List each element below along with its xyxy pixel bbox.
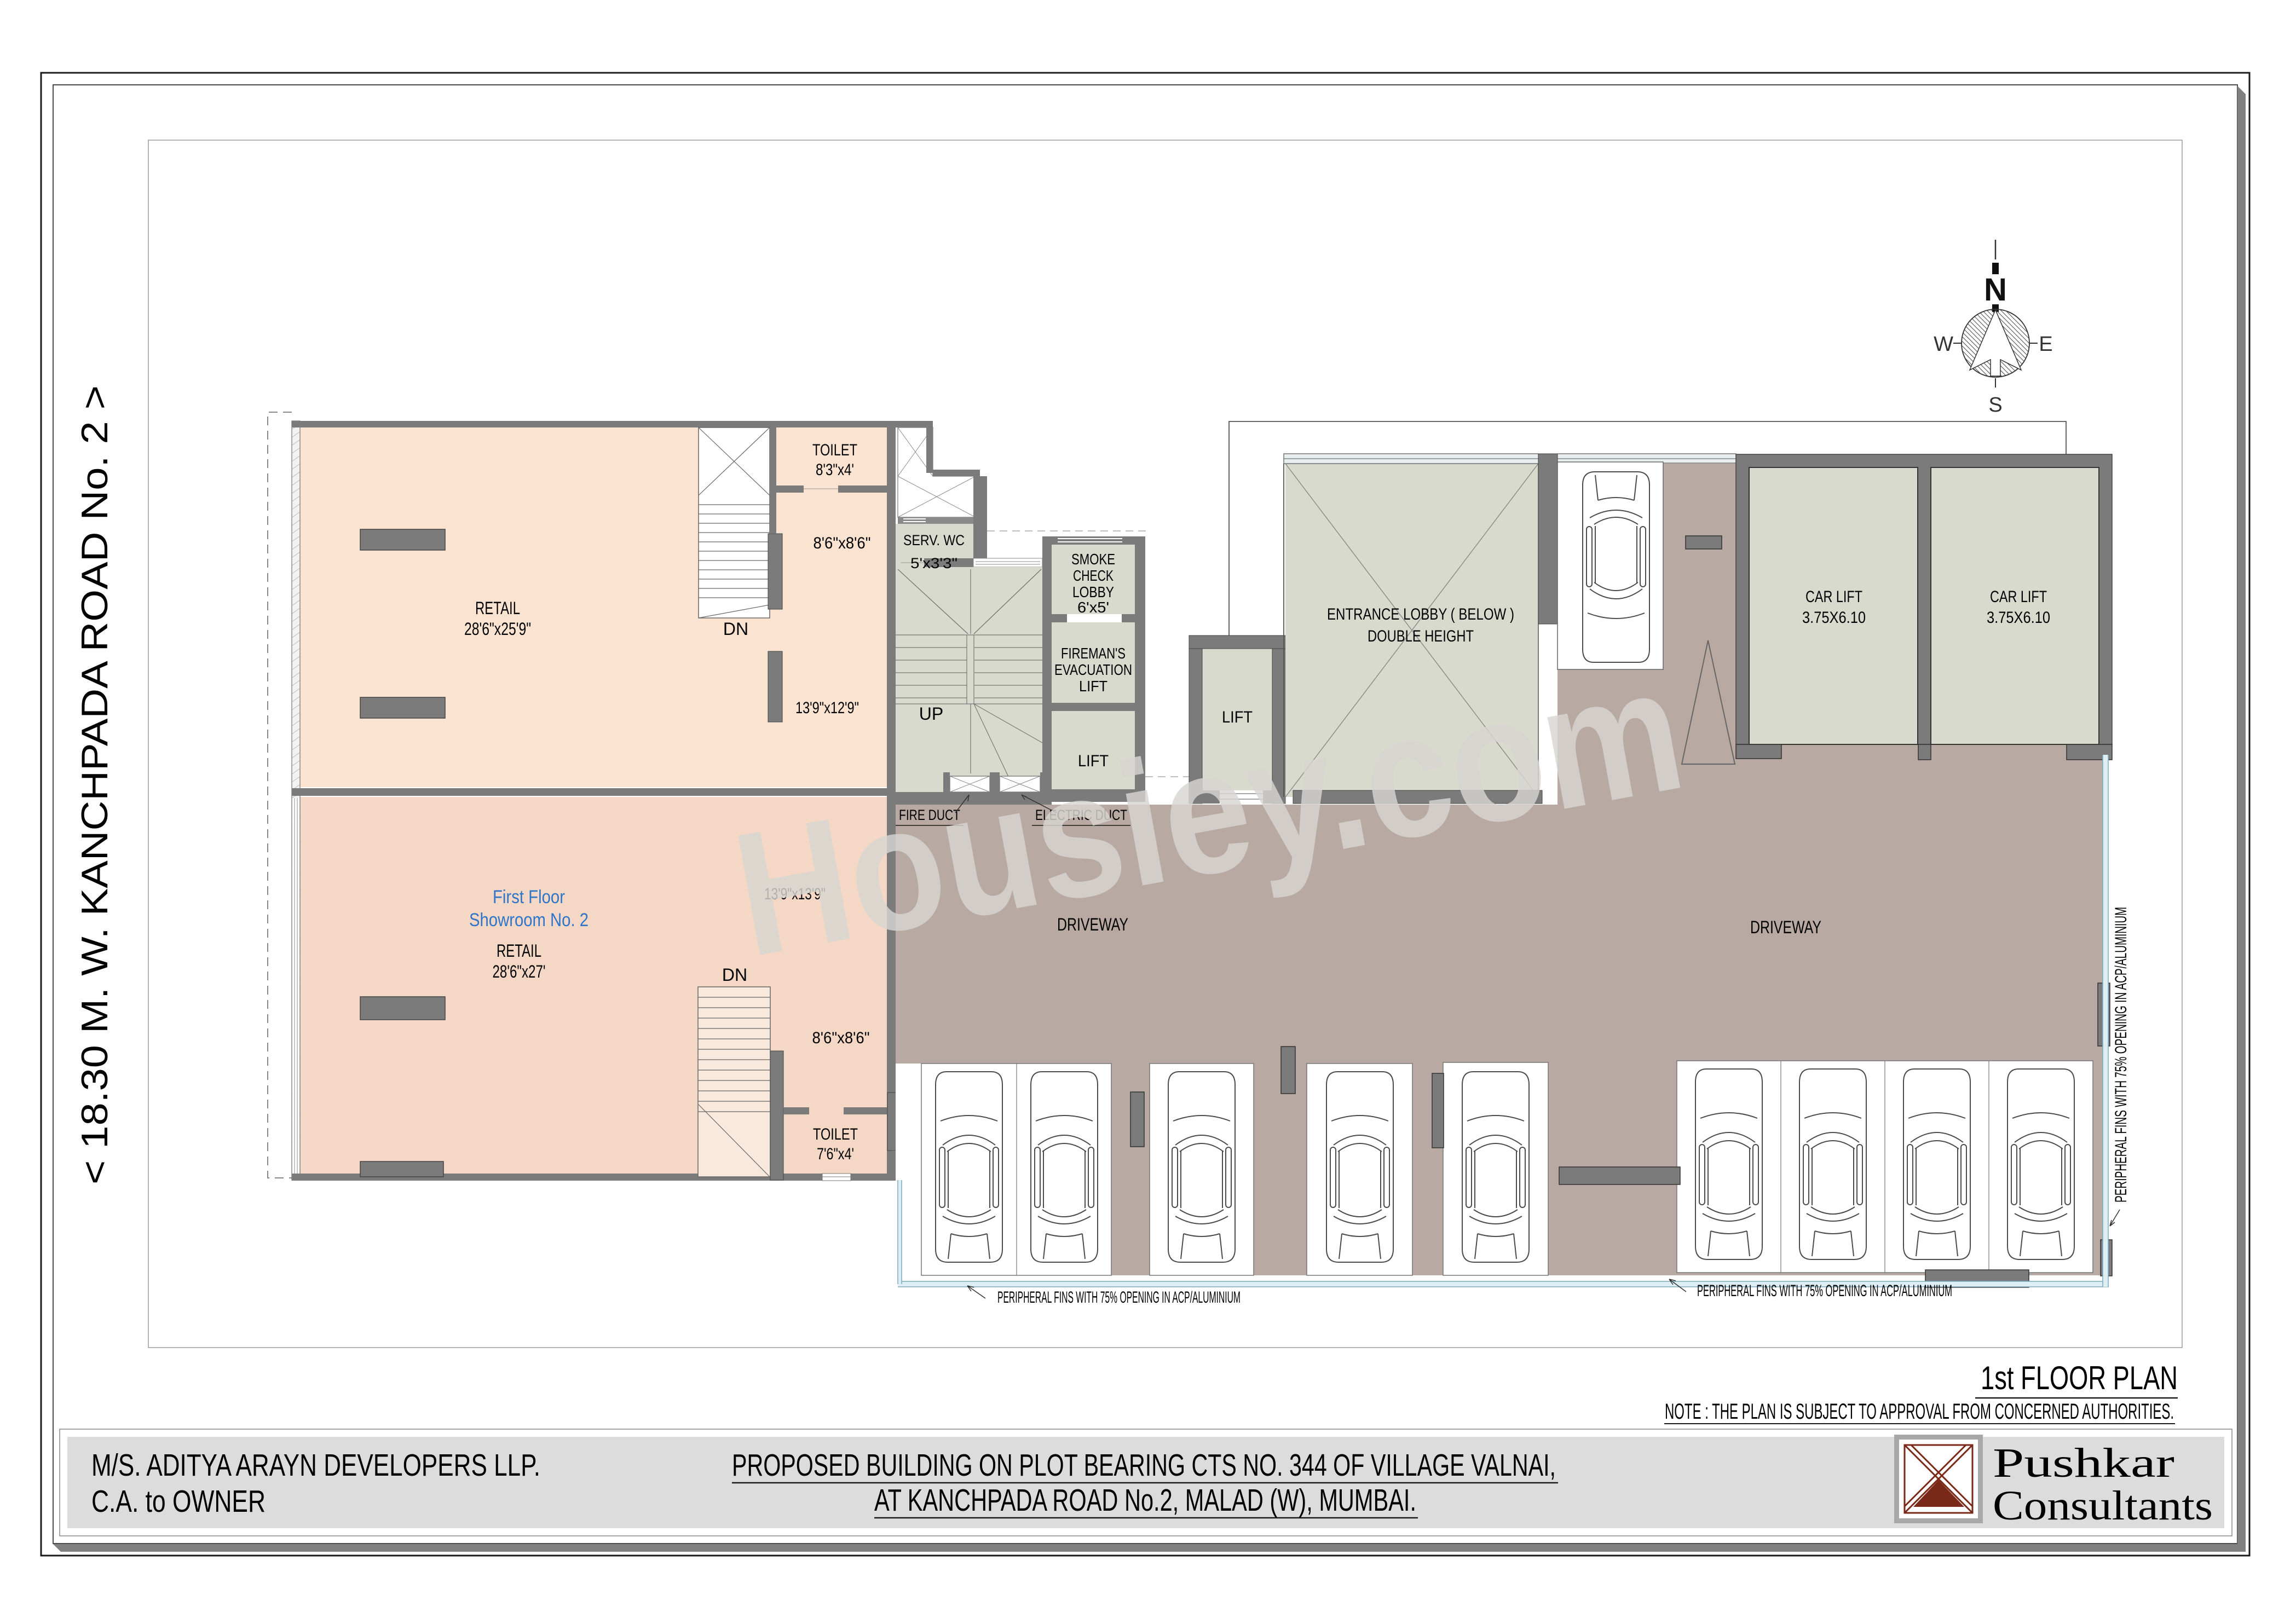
svg-text:TOILET: TOILET [813,1125,858,1143]
svg-text:CAR LIFT: CAR LIFT [1805,588,1862,606]
svg-text:RETAIL: RETAIL [497,941,541,961]
svg-text:SERV. WC: SERV. WC [903,532,965,548]
svg-text:TOILET: TOILET [812,441,857,459]
svg-text:W: W [1934,333,1953,356]
svg-text:DOUBLE HEIGHT: DOUBLE HEIGHT [1368,627,1474,645]
svg-text:RETAIL: RETAIL [475,598,520,618]
svg-text:S: S [1988,394,2002,417]
svg-text:AT KANCHPADA ROAD No.2, MALAD: AT KANCHPADA ROAD No.2, MALAD (W), MUMBA… [874,1483,1416,1518]
svg-text:C.A. to OWNER: C.A. to OWNER [91,1484,266,1519]
svg-text:28'6"x27': 28'6"x27' [493,962,546,981]
svg-text:M/S. ADITYA ARAYN DEVELOPERS L: M/S. ADITYA ARAYN DEVELOPERS LLP. [91,1448,540,1483]
svg-text:Consultants: Consultants [1993,1483,2213,1529]
svg-text:DRIVEWAY: DRIVEWAY [1750,917,1821,937]
svg-text:PROPOSED BUILDING ON PLOT BEAR: PROPOSED BUILDING ON PLOT BEARING CTS NO… [732,1448,1556,1483]
svg-text:UP: UP [919,704,943,724]
svg-text:ENTRANCE LOBBY ( BELOW ): ENTRANCE LOBBY ( BELOW ) [1327,605,1514,623]
svg-text:5'x3'3": 5'x3'3" [910,555,957,571]
svg-text:13'9"x12'9": 13'9"x12'9" [795,699,859,717]
svg-text:< 18.30 M. W. KANCHPADA ROA: < 18.30 M. W. KANCHPADA ROAD No. 2 > [74,385,116,1184]
svg-text:E: E [2039,333,2052,356]
svg-text:3.75X6.10: 3.75X6.10 [1987,609,2050,627]
svg-text:CHECK: CHECK [1073,567,1114,584]
svg-text:DN: DN [722,965,747,985]
svg-text:28'6"x25'9": 28'6"x25'9" [464,619,531,639]
svg-text:FIREMAN'S: FIREMAN'S [1061,645,1126,662]
svg-text:N: N [1984,272,2007,308]
svg-text:PERIPHERAL FINS WITH 75% OPENI: PERIPHERAL FINS WITH 75% OPENING IN ACP/… [2112,907,2130,1203]
svg-text:6'x5': 6'x5' [1077,599,1109,616]
svg-text:Pushkar: Pushkar [1993,1440,2174,1486]
svg-text:8'6"x8'6": 8'6"x8'6" [812,1029,870,1047]
svg-text:8'6"x8'6": 8'6"x8'6" [814,534,871,552]
svg-text:First Floor: First Floor [493,887,565,908]
svg-text:LIFT: LIFT [1079,678,1107,695]
svg-text:1st FLOOR PLAN: 1st FLOOR PLAN [1981,1360,2178,1396]
svg-text:NOTE : THE PLAN IS SUBJECT TO: NOTE : THE PLAN IS SUBJECT TO APPROVAL F… [1665,1400,2174,1424]
svg-text:EVACUATION: EVACUATION [1054,661,1132,678]
svg-text:3.75X6.10: 3.75X6.10 [1802,609,1866,627]
svg-text:CAR LIFT: CAR LIFT [1990,588,2047,606]
svg-text:8'3"x4': 8'3"x4' [816,461,854,479]
svg-text:7'6"x4': 7'6"x4' [817,1145,854,1163]
svg-text:PERIPHERAL FINS WITH 75% OPENI: PERIPHERAL FINS WITH 75% OPENING IN ACP/… [997,1288,1241,1307]
svg-text:Showroom No. 2: Showroom No. 2 [469,910,589,931]
svg-text:LOBBY: LOBBY [1072,583,1114,600]
svg-text:DN: DN [723,619,748,639]
svg-text:PERIPHERAL FINS WITH 75% OPENI: PERIPHERAL FINS WITH 75% OPENING IN ACP/… [1697,1282,1952,1300]
svg-text:SMOKE: SMOKE [1071,551,1115,568]
